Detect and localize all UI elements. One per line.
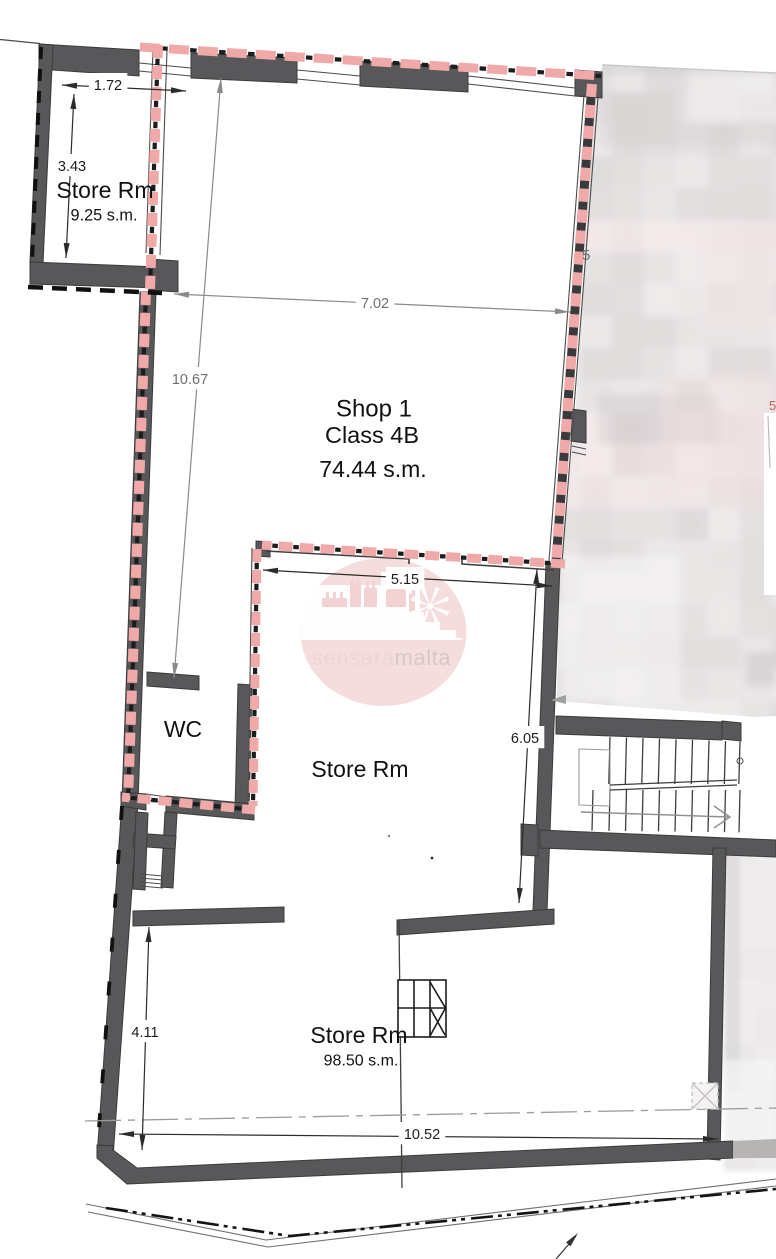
- svg-text:Store Rm: Store Rm: [56, 177, 153, 203]
- svg-text:5: 5: [582, 247, 590, 264]
- svg-text:4.11: 4.11: [131, 1025, 158, 1041]
- svg-text:1.72: 1.72: [94, 78, 122, 94]
- svg-text:WC: WC: [164, 716, 202, 742]
- svg-text:5.15: 5.15: [391, 572, 419, 588]
- svg-text:7.02: 7.02: [361, 296, 389, 312]
- svg-text:98.50 s.m.: 98.50 s.m.: [324, 1053, 399, 1070]
- svg-text:Shop 1: Shop 1: [336, 395, 412, 422]
- svg-text:74.44 s.m.: 74.44 s.m.: [319, 456, 426, 482]
- svg-text:6.05: 6.05: [511, 731, 539, 747]
- svg-text:sensaramalta: sensaramalta: [312, 645, 451, 670]
- svg-text:Store Rm: Store Rm: [310, 1022, 407, 1048]
- svg-text:10.52: 10.52: [404, 1127, 440, 1143]
- svg-text:Class 4B: Class 4B: [325, 422, 419, 448]
- svg-text:5: 5: [769, 398, 776, 413]
- svg-text:Store Rm: Store Rm: [311, 756, 408, 782]
- svg-text:3.43: 3.43: [58, 159, 86, 175]
- svg-text:10.67: 10.67: [172, 372, 208, 388]
- svg-text:9.25 s.m.: 9.25 s.m.: [71, 207, 138, 225]
